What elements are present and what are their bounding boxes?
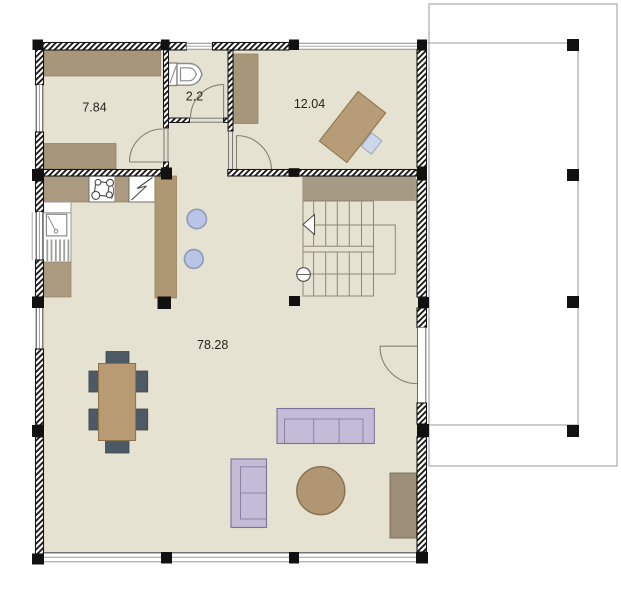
svg-text:2.2: 2.2 — [186, 90, 203, 104]
svg-text:78.28: 78.28 — [197, 338, 228, 352]
svg-text:12.04: 12.04 — [294, 97, 325, 111]
svg-text:7.84: 7.84 — [82, 101, 106, 115]
